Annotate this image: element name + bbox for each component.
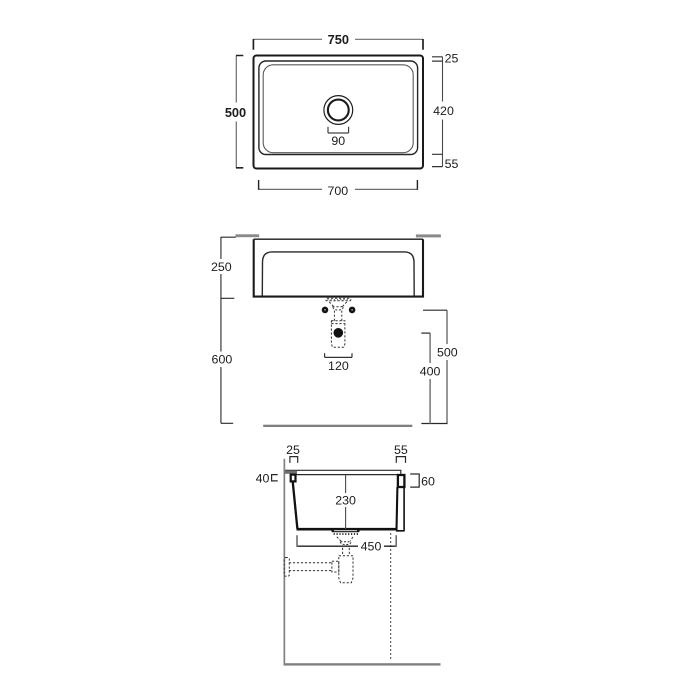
svg-text:500: 500 <box>225 105 246 120</box>
svg-text:60: 60 <box>421 475 435 489</box>
svg-text:450: 450 <box>361 540 382 554</box>
svg-text:500: 500 <box>437 346 458 360</box>
svg-text:250: 250 <box>211 260 232 274</box>
svg-text:400: 400 <box>420 365 441 379</box>
svg-text:90: 90 <box>331 134 345 148</box>
svg-text:120: 120 <box>328 359 349 373</box>
svg-text:750: 750 <box>328 32 349 47</box>
svg-text:230: 230 <box>335 494 356 508</box>
svg-text:700: 700 <box>327 184 348 198</box>
svg-text:600: 600 <box>212 353 233 367</box>
svg-text:25: 25 <box>286 443 300 457</box>
svg-text:55: 55 <box>394 443 408 457</box>
svg-text:25: 25 <box>445 51 459 65</box>
svg-text:40: 40 <box>256 471 270 485</box>
svg-text:420: 420 <box>433 104 454 118</box>
svg-text:55: 55 <box>445 157 459 171</box>
